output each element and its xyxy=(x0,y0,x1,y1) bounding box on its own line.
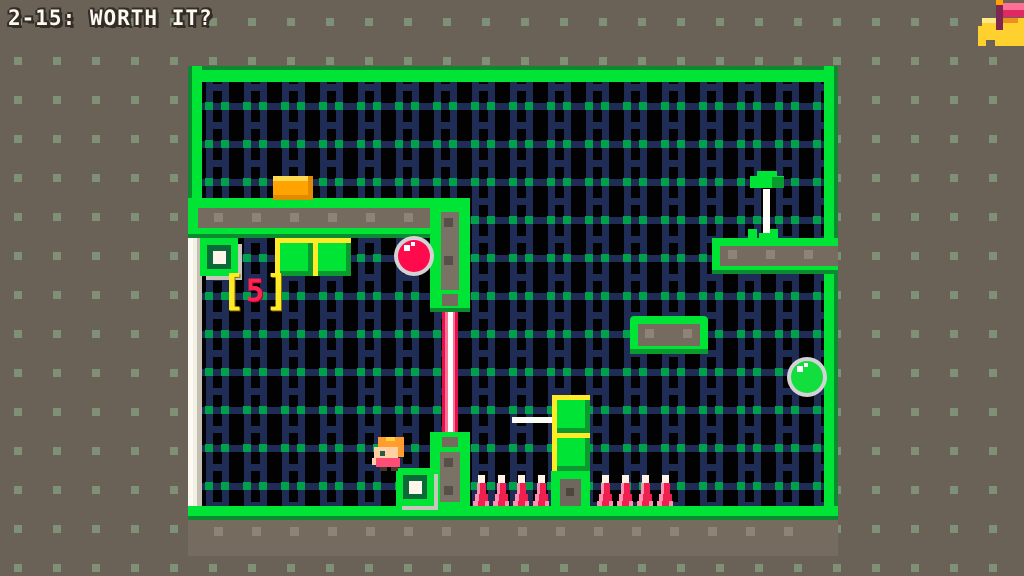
gold-block xyxy=(273,176,313,200)
floor-underlayer xyxy=(188,520,838,556)
level-canvas xyxy=(0,0,1024,576)
white-beam xyxy=(512,417,552,423)
crate-pillar xyxy=(551,471,590,506)
moving-platform xyxy=(630,316,708,354)
green-ball xyxy=(787,357,827,397)
plant-stem xyxy=(763,189,770,233)
level-interior xyxy=(202,82,824,506)
game-screen[interactable]: 2-15: WORTH IT? [ 5 ] xyxy=(0,0,1024,576)
bracket-open: [ xyxy=(220,269,245,313)
level-title: 2-15: WORTH IT? xyxy=(8,6,213,30)
counter-value: 5 xyxy=(246,269,265,313)
crate xyxy=(552,433,590,471)
crate xyxy=(552,395,590,433)
gem-requirement-counter: [ 5 ] xyxy=(229,268,281,314)
crate xyxy=(313,238,351,276)
exit-ledge xyxy=(712,238,838,274)
red-ball xyxy=(394,236,434,276)
switch-button-bottom xyxy=(396,468,438,510)
laser-emitter-top xyxy=(442,294,458,306)
bracket-close: ] xyxy=(264,269,289,313)
